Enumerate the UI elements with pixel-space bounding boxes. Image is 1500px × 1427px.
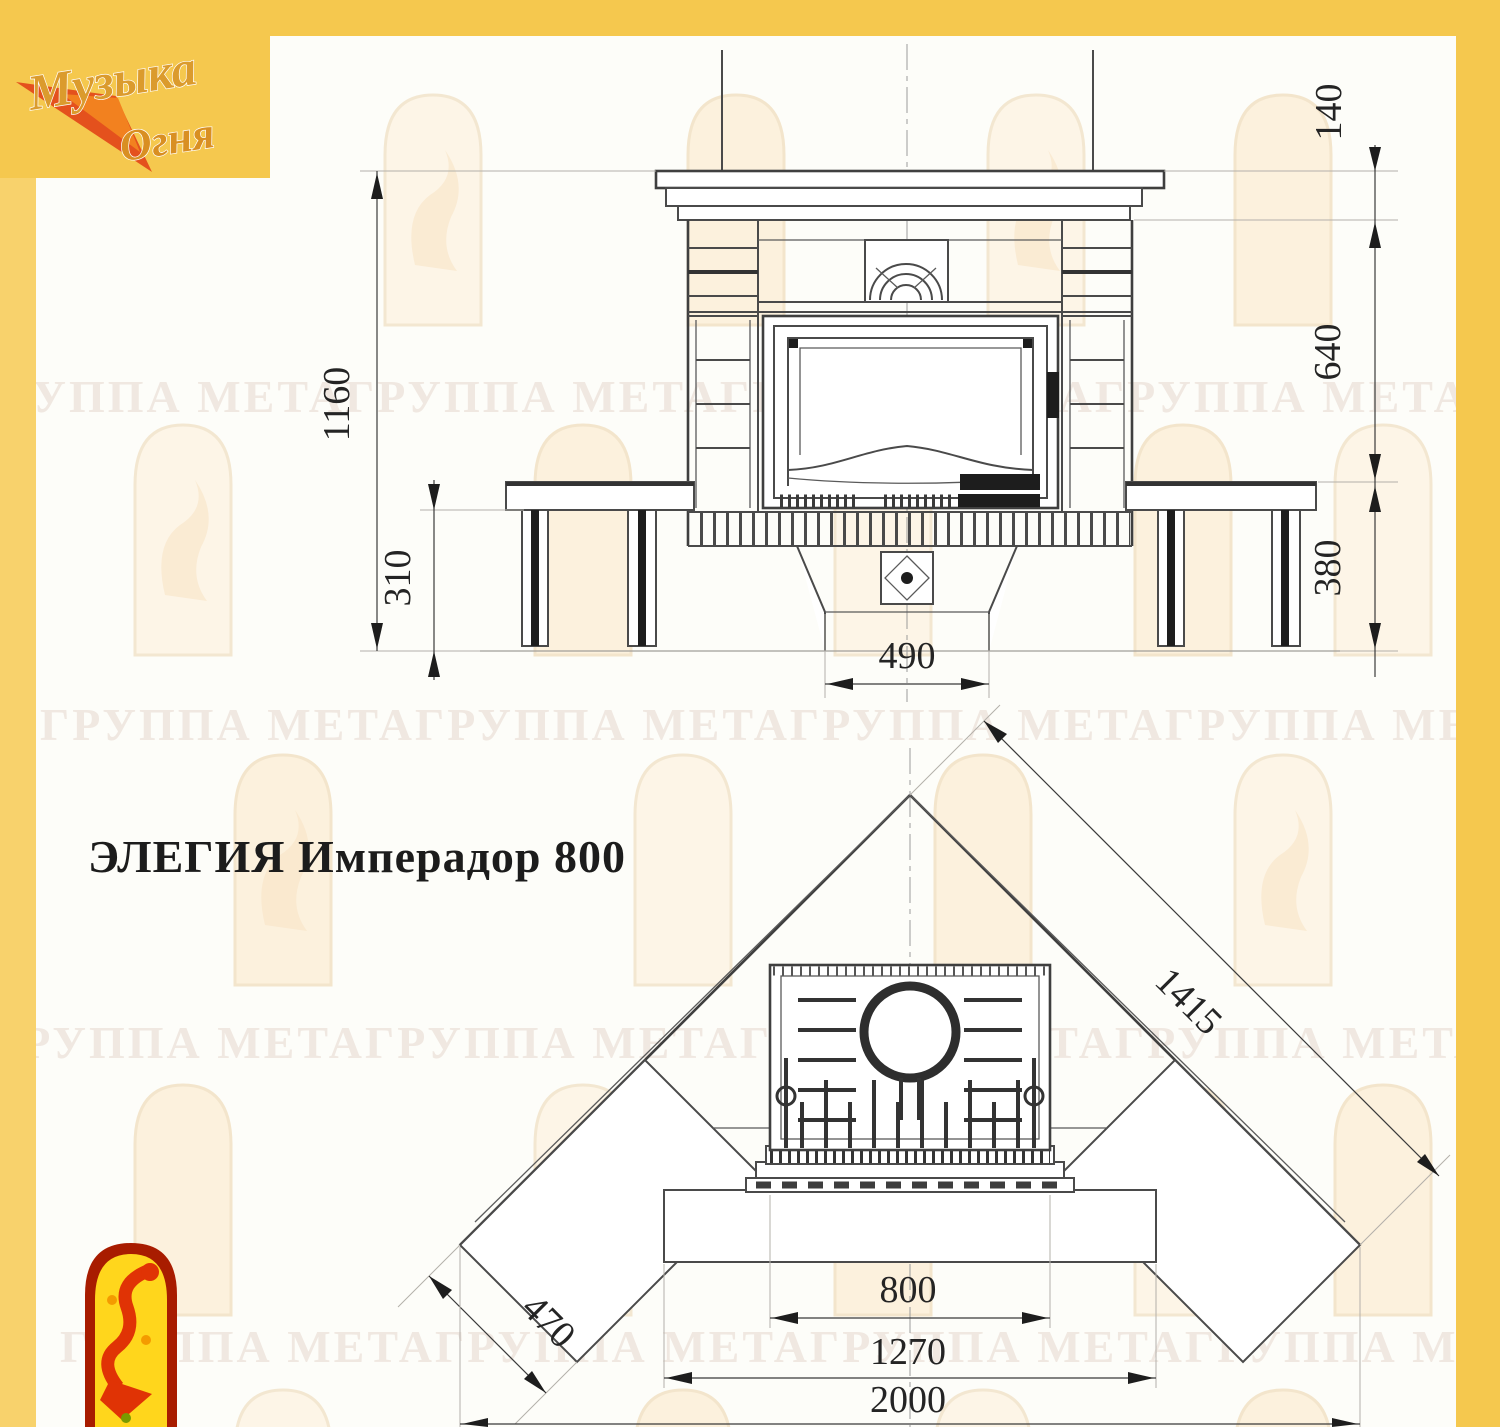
drawing-canvas: ГРУППА МЕТАГРУППА МЕТАГРУППА МЕТАГРУППА …	[0, 0, 1500, 1427]
dim-label-380: 380	[1307, 540, 1349, 597]
brand-logo: Музыка Огня	[0, 0, 270, 178]
hearth-apron	[664, 1190, 1156, 1262]
dim-label-1160: 1160	[316, 367, 358, 442]
dim-label-310: 310	[377, 550, 419, 607]
dim-label-140: 140	[1308, 84, 1350, 141]
scanned-drawing-page: ГРУППА МЕТАГРУППА МЕТАГРУППА МЕТАГРУППА …	[0, 0, 1500, 1427]
dim-label-1270: 1270	[870, 1331, 946, 1373]
firebox-door	[763, 316, 1059, 508]
firebird-arch-icon	[85, 1243, 177, 1427]
dim-label-640: 640	[1307, 324, 1349, 381]
insert-plan	[746, 965, 1074, 1192]
dim-label-800: 800	[880, 1269, 937, 1311]
door-handle	[1047, 372, 1059, 418]
watermark-text: ГРУППА МЕТАГРУППА МЕТАГРУППА МЕТАГРУППА …	[40, 699, 1500, 750]
watermark-text: ГРУППА МЕТАГРУППА МЕТАГРУППА МЕТАГРУППА …	[60, 1321, 1500, 1372]
page-title: ЭЛЕГИЯ Имперадор 800	[88, 831, 626, 882]
ash-lip	[960, 474, 1040, 490]
dim-label-2000: 2000	[870, 1379, 946, 1421]
watermark-text: ГРУППА МЕТАГРУППА МЕТАГРУППА МЕТАГРУППА …	[0, 1017, 1500, 1068]
dim-label-490: 490	[879, 635, 936, 677]
shell-ornament	[865, 240, 948, 302]
